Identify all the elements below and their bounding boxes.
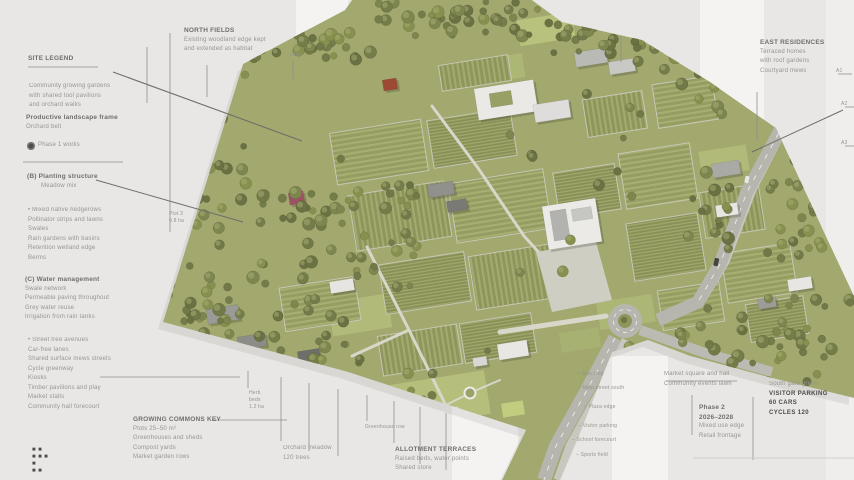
- annotation-text: ■ ■: [32, 447, 48, 454]
- annotation-text: beds: [249, 397, 264, 404]
- annotation-text: – Visitor parking: [578, 423, 617, 430]
- edge-tag-3: A3: [841, 140, 848, 147]
- annotation-text: Greenhouses and sheds: [133, 434, 221, 444]
- annotation-text: – Sports field: [576, 452, 608, 459]
- annotation-text: EAST RESIDENCES: [760, 38, 824, 48]
- annotation-text: ■ ■: [32, 468, 48, 475]
- road-note-2: – Main street south: [578, 385, 624, 392]
- left-section-b: (B) Planting structureMeadow mix: [27, 172, 98, 191]
- left-legend-title: SITE LEGEND: [28, 54, 74, 64]
- annotation-text: Plot 3: [169, 211, 184, 218]
- annotation-text: Compost yards: [133, 444, 221, 454]
- annotation-text: Phase 1 works: [38, 141, 80, 151]
- annotation-text: and extended as habitat: [184, 45, 266, 55]
- phase-dot-icon: [27, 142, 35, 150]
- road-note-5: – School forecourt: [572, 437, 616, 444]
- annotation-text: Market square and hall: [664, 370, 732, 380]
- annotation-text: Community events lawn: [664, 380, 732, 390]
- annotation-text: Community growing gardens: [29, 82, 110, 92]
- annotation-text: Shared surface mews streets: [28, 355, 111, 365]
- annotation-text: • Mixed native hedgerows: [28, 206, 103, 216]
- annotation-text: A3: [841, 140, 848, 147]
- annotation-text: Community hall forecourt: [28, 403, 111, 413]
- annotation-text: with shared tool pavilions: [29, 92, 110, 102]
- left-note-2: Productive landscape frameOrchard belt: [26, 113, 118, 132]
- east-label: EAST RESIDENCESTerraced homeswith roof g…: [760, 38, 824, 76]
- annotation-text: Existing woodland edge kept: [184, 36, 266, 46]
- edge-tag-2: A2: [841, 101, 848, 108]
- annotation-text: Grey water reuse: [25, 304, 109, 314]
- annotation-text: • Street tree avenues: [28, 336, 111, 346]
- annotation-text: Permeable paving throughout: [25, 294, 109, 304]
- annotation-text: with roof gardens: [760, 57, 824, 67]
- greenhouse-tag: Greenhouse row: [365, 424, 405, 431]
- annotation-text: A2: [841, 101, 848, 108]
- annotation-text: Courtyard mews: [760, 67, 824, 77]
- annotation-text: South gate green: [769, 380, 828, 390]
- allotment-note: ALLOTMENT TERRACESRaised beds, water poi…: [395, 445, 476, 474]
- phase-legend: Phase 1 works: [27, 141, 80, 151]
- annotation-text: Terraced homes: [760, 48, 824, 58]
- annotation-text: Pollinator strips and lawns: [28, 216, 103, 226]
- annotation-text: Market garden rows: [133, 453, 221, 463]
- phase2-note: Phase 22026–2028Mixed use edgeRetail fro…: [699, 403, 744, 441]
- annotation-text: Market stalls: [28, 393, 111, 403]
- annotation-text: Retail frontage: [699, 432, 744, 442]
- left-list-1: • Mixed native hedgerowsPollinator strip…: [28, 206, 103, 263]
- annotation-text: 1.2 ha: [249, 404, 264, 411]
- annotation-text: Swale network: [25, 285, 109, 295]
- plot-tag: Plot 30.8 ha: [169, 211, 184, 225]
- annotation-text: Raised beds, water points: [395, 455, 476, 465]
- annotation-text: Irrigation from rain tanks: [25, 313, 109, 323]
- annotation-text: Orchard meadow: [283, 444, 332, 454]
- left-section-c: (C) Water managementSwale networkPermeab…: [25, 275, 109, 323]
- road-note-6: – Sports field: [576, 452, 608, 459]
- annotation-text: SITE LEGEND: [28, 54, 74, 64]
- annotation-text: and orchard walks: [29, 101, 110, 111]
- annotation-text: GROWING COMMONS KEY: [133, 415, 221, 425]
- edge-tag-1: A1: [836, 68, 843, 75]
- annotation-text: (C) Water management: [25, 275, 109, 285]
- annotation-text: 60 CARS: [769, 399, 828, 409]
- road-note-3: – Plaza edge: [584, 404, 616, 411]
- annotation-text: VISITOR PARKING: [769, 390, 828, 400]
- annotation-text: Mixed use edge: [699, 422, 744, 432]
- parking-note: South gate greenVISITOR PARKING60 CARSCY…: [769, 380, 828, 418]
- annotation-text: Oaks: [290, 52, 302, 59]
- north-label: NORTH FIELDSExisting woodland edge kepta…: [184, 26, 266, 55]
- growing-key: GROWING COMMONS KEYPlots 25–50 m²Greenho…: [133, 415, 221, 463]
- annotation-text: Meadow mix: [41, 182, 98, 192]
- footer-marks: ■ ■■ ■ ■■■ ■: [32, 447, 48, 475]
- annotation-text: 120 trees: [283, 454, 332, 464]
- annotation-text: 0.8 ha: [169, 218, 184, 225]
- annotation-text: A1: [836, 68, 843, 75]
- annotation-text: – Plaza edge: [584, 404, 616, 411]
- annotation-text: Swales: [28, 225, 103, 235]
- annotation-text: Timber pavilions and play: [28, 384, 111, 394]
- annotation-text: Plots 25–50 m²: [133, 425, 221, 435]
- annotation-text: Phase 2: [699, 403, 744, 413]
- annotation-text: 2026–2028: [699, 413, 744, 423]
- market-note: Market square and hallCommunity events l…: [664, 370, 732, 389]
- annotation-text: Kiosks: [28, 374, 111, 384]
- annotation-text: Rain gardens with basins: [28, 235, 103, 245]
- annotation-text: ■ ■ ■: [32, 454, 48, 461]
- annotation-layer: SITE LEGENDCommunity growing gardenswith…: [0, 0, 854, 480]
- road-note-1: – Bus stop: [578, 371, 604, 378]
- annotation-text: Greenhouse row: [365, 424, 405, 431]
- annotation-text: Productive landscape frame: [26, 113, 118, 123]
- annotation-text: Car-free lanes: [28, 346, 111, 356]
- orchard-note: Orchard meadow120 trees: [283, 444, 332, 463]
- annotation-text: NORTH FIELDS: [184, 26, 266, 36]
- annotation-text: (B) Planting structure: [27, 172, 98, 182]
- masterplan-scene: SITE LEGENDCommunity growing gardenswith…: [0, 0, 854, 480]
- annotation-text: ALLOTMENT TERRACES: [395, 445, 476, 455]
- left-note-1: Community growing gardenswith shared too…: [29, 82, 110, 111]
- annotation-text: – School forecourt: [572, 437, 616, 444]
- left-list-2: • Street tree avenuesCar-free lanesShare…: [28, 336, 111, 412]
- annotation-text: Cycle greenway: [28, 365, 111, 375]
- road-note-4: – Visitor parking: [578, 423, 617, 430]
- herb-tag: Herbbeds1.2 ha: [249, 390, 264, 411]
- annotation-text: Orchard belt: [26, 123, 118, 133]
- annotation-text: Herb: [249, 390, 264, 397]
- annotation-text: – Main street south: [578, 385, 624, 392]
- annotation-text: Retention wetland edge: [28, 244, 103, 254]
- annotation-text: Shared store: [395, 464, 476, 474]
- annotation-text: CYCLES 120: [769, 409, 828, 419]
- annotation-text: Berms: [28, 254, 103, 264]
- annotation-text: – Bus stop: [578, 371, 604, 378]
- annotation-text: ■: [32, 461, 48, 468]
- oak-tag: Oaks: [290, 52, 302, 59]
